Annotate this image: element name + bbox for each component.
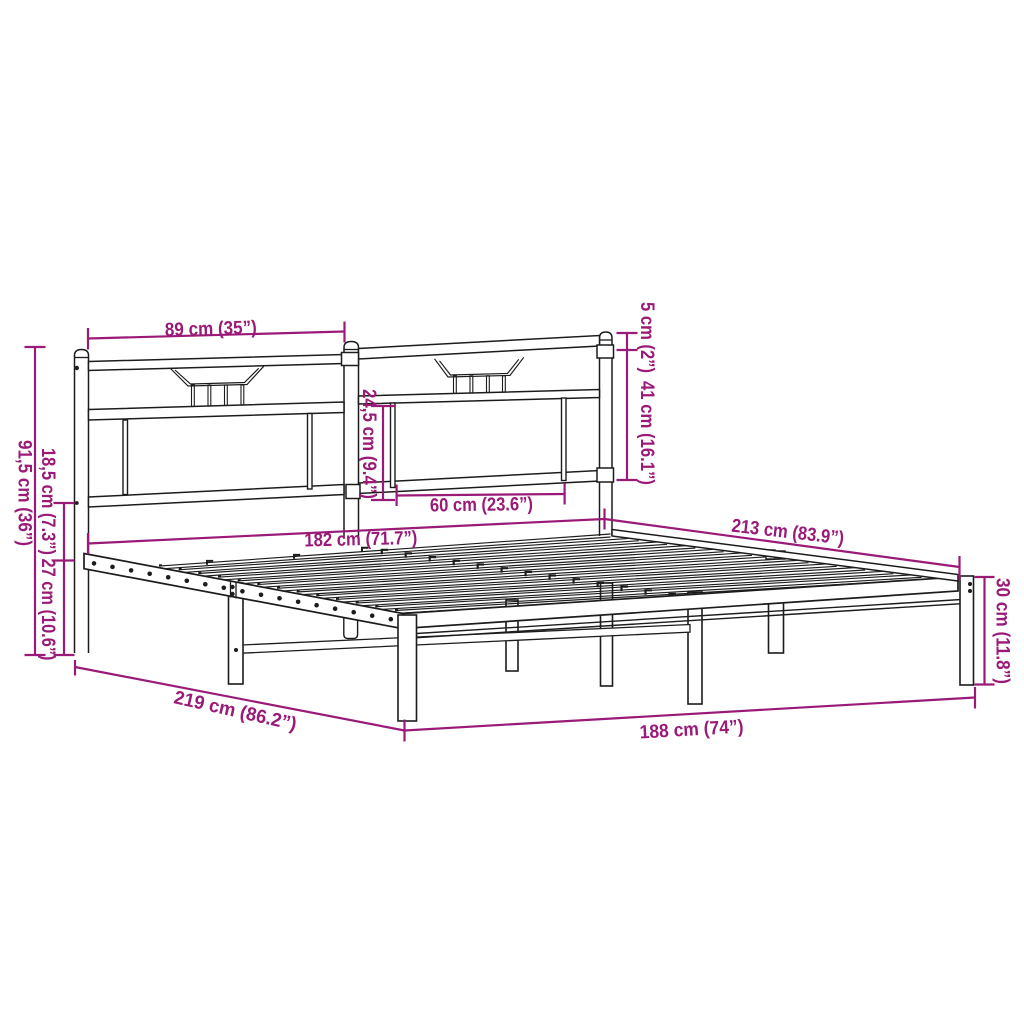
svg-text:41 cm (16.1”): 41 cm (16.1”) <box>636 381 657 485</box>
svg-text:24,5 cm (9.4”): 24,5 cm (9.4”) <box>358 389 379 499</box>
svg-text:91,5 cm (36”): 91,5 cm (36”) <box>14 440 35 546</box>
svg-text:60 cm (23.6”): 60 cm (23.6”) <box>430 494 533 516</box>
svg-text:182 cm (71.7”): 182 cm (71.7”) <box>304 528 417 552</box>
svg-text:18,5 cm (7.3”): 18,5 cm (7.3”) <box>37 448 58 555</box>
svg-text:30 cm (11.8”): 30 cm (11.8”) <box>992 578 1013 684</box>
svg-text:5 cm (2”): 5 cm (2”) <box>636 302 657 373</box>
svg-text:89 cm (35”): 89 cm (35”) <box>165 317 258 341</box>
svg-text:27 cm (10.6”): 27 cm (10.6”) <box>37 559 58 661</box>
